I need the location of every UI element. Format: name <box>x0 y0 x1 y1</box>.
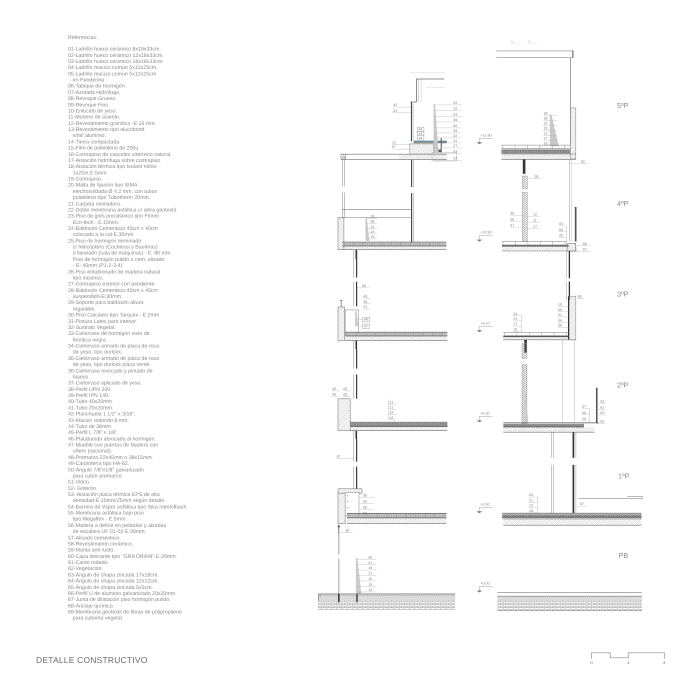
svg-text:52- Goterón.: 52- Goterón. <box>68 486 97 492</box>
svg-text:27: 27 <box>453 144 457 148</box>
svg-text:18: 18 <box>529 509 533 513</box>
svg-text:29: 29 <box>559 234 563 238</box>
svg-text:05-Ladrillo macizo común 5x12x: 05-Ladrillo macizo común 5x12x25cm <box>68 71 157 77</box>
svg-text:21: 21 <box>529 498 533 502</box>
svg-text:67: 67 <box>337 455 341 459</box>
svg-text:51: 51 <box>558 313 562 317</box>
svg-text:43-Macizo redondo 8 mm.: 43-Macizo redondo 8 mm. <box>68 418 129 424</box>
svg-text:- E: 40mm (P1-2-3-4): - E: 40mm (P1-2-3-4) <box>73 263 123 269</box>
svg-text:65: 65 <box>535 175 539 179</box>
svg-text:electrosoldada Ø 4,2 mm, con t: electrosoldada Ø 4,2 mm, con tubos <box>73 189 158 195</box>
svg-text:1: 1 <box>627 660 630 665</box>
svg-text:29-Soporte para baldosón altur: 29-Soporte para baldosón altura <box>68 300 143 306</box>
svg-text:58: 58 <box>362 284 366 288</box>
svg-text:22: 22 <box>544 121 548 125</box>
svg-text:32: 32 <box>453 107 457 111</box>
svg-text:62: 62 <box>600 406 604 410</box>
svg-text:18: 18 <box>513 327 517 331</box>
svg-text:55: 55 <box>371 220 375 224</box>
svg-text:18-Aislación térmica tipo Isol: 18-Aislación térmica tipo Isolant rollos… <box>68 164 158 170</box>
svg-text:58: 58 <box>510 217 514 221</box>
svg-text:59-Manta anti ruido.: 59-Manta anti ruido. <box>68 548 115 554</box>
svg-text:63: 63 <box>600 399 604 403</box>
svg-text:21: 21 <box>544 131 548 135</box>
svg-text:30: 30 <box>510 211 514 215</box>
svg-text:19: 19 <box>389 411 393 415</box>
svg-text:28: 28 <box>544 111 548 115</box>
svg-text:09-Revoque Fino.: 09-Revoque Fino. <box>68 102 110 108</box>
svg-text:13: 13 <box>529 504 533 508</box>
svg-text:21: 21 <box>513 317 517 321</box>
svg-text:13-Revestimiento tipo alucobon: 13-Revestimiento tipo alucobond <box>68 127 145 133</box>
svg-text:22: 22 <box>453 134 457 138</box>
svg-text:67: 67 <box>583 247 587 251</box>
svg-text:44-Tubo de 38mm.: 44-Tubo de 38mm. <box>68 424 112 430</box>
svg-text:62: 62 <box>346 529 350 533</box>
svg-text:39-Perfil IPN 140.: 39-Perfil IPN 140. <box>68 393 109 399</box>
svg-text:62-Vegetación.: 62-Vegetación. <box>68 566 103 572</box>
svg-text:69-Membrana geotextil de fibra: 69-Membrana geotextil de fibras de polip… <box>68 610 182 616</box>
svg-text:67: 67 <box>580 502 584 506</box>
svg-text:densidad-E:10mm/25mm según det: densidad-E:10mm/25mm según detalle. <box>73 498 166 504</box>
svg-text:63: 63 <box>559 222 563 226</box>
svg-text:57: 57 <box>582 405 586 409</box>
svg-text:20-Malla de fijación tipo SIMA: 20-Malla de fijación tipo SIMA <box>68 183 138 189</box>
svg-text:14-Tierra compactada.: 14-Tierra compactada. <box>68 139 121 145</box>
svg-text:44: 44 <box>419 136 423 140</box>
svg-text:26: 26 <box>368 555 372 559</box>
svg-text:21: 21 <box>389 406 393 410</box>
svg-text:53: 53 <box>544 141 548 145</box>
svg-text:57-Alisado cementicio.: 57-Alisado cementicio. <box>68 535 121 541</box>
svg-text:05: 05 <box>363 500 367 504</box>
svg-text:35-Cielorraso armado de placa: 35-Cielorraso armado de placa de roca <box>68 356 159 362</box>
svg-text:12: 12 <box>392 140 396 144</box>
svg-text:08: 08 <box>363 506 367 510</box>
svg-text:62: 62 <box>528 40 532 44</box>
svg-text:65-Ángulo de chapa zincada 5x5: 65-Ángulo de chapa zincada 5x5cm. <box>68 584 153 591</box>
svg-text:32-Sustrato Vegetal.: 32-Sustrato Vegetal. <box>68 325 116 331</box>
svg-text:19-Contrapiso.: 19-Contrapiso. <box>68 177 102 183</box>
svg-text:48: 48 <box>364 318 368 322</box>
svg-text:06: 06 <box>578 294 582 298</box>
svg-text:60-Capa drenante tipo "GRA DRA: 60-Capa drenante tipo "GRA DRAIN"-E.20mm… <box>68 554 177 560</box>
svg-text:49: 49 <box>363 295 367 299</box>
svg-text:31-Pintura Latex para interior: 31-Pintura Latex para interior. <box>68 319 137 325</box>
svg-text:38-Perfil UPN 200.: 38-Perfil UPN 200. <box>68 387 112 393</box>
svg-text:18: 18 <box>371 235 375 239</box>
svg-text:58-Revestimiento cerámico.: 58-Revestimiento cerámico. <box>68 541 133 547</box>
svg-text:60: 60 <box>600 420 604 424</box>
svg-text:+2.50: +2.50 <box>480 502 489 506</box>
svg-text:54-Barrera de Vapor asfáltica: 54-Barrera de Vapor asfáltica tipo Sika … <box>68 504 188 510</box>
svg-text:54: 54 <box>453 157 457 161</box>
svg-text:63-Ángulo de chapa zincada 17x: 63-Ángulo de chapa zincada 17x18cm. <box>68 571 159 578</box>
svg-text:blanco.: blanco. <box>73 374 90 380</box>
svg-text:30: 30 <box>371 215 375 219</box>
svg-text:14: 14 <box>368 588 372 592</box>
svg-text:16: 16 <box>368 577 372 581</box>
svg-text:para cubrir premarco.: para cubrir premarco. <box>73 473 123 479</box>
svg-text:24: 24 <box>513 312 517 316</box>
svg-text:53: 53 <box>453 150 457 154</box>
svg-text:36: 36 <box>363 300 367 304</box>
svg-text:34-Cielorraso armado de placa: 34-Cielorraso armado de placa de roca <box>68 344 159 350</box>
svg-text:21: 21 <box>453 139 457 143</box>
svg-text:03-Ladrillo hueco cerámico 18x: 03-Ladrillo hueco cerámico 18x18x33cm. <box>68 59 164 65</box>
svg-text:27: 27 <box>533 224 537 228</box>
svg-text:08-Revoque Grueso.: 08-Revoque Grueso. <box>68 96 117 102</box>
svg-text:21-Carpeta niveladora.: 21-Carpeta niveladora. <box>68 201 121 207</box>
svg-text:21: 21 <box>371 225 375 229</box>
svg-text:uñero (opcional).: uñero (opcional). <box>73 449 112 455</box>
svg-text:20: 20 <box>529 493 533 497</box>
svg-text:10: 10 <box>558 303 562 307</box>
svg-text:36-Cielorraso revocado y pinta: 36-Cielorraso revocado y pintado de <box>68 368 153 374</box>
svg-text:41-Tubo 20x20mm.: 41-Tubo 20x20mm. <box>68 405 113 411</box>
svg-text:o llaneado (sala de máquinas): o llaneado (sala de máquinas) - E: 80 mm <box>73 251 171 257</box>
svg-text:68: 68 <box>583 242 587 246</box>
svg-text:de escalera UF 01-02-E:30mm.: de escalera UF 01-02-E:30mm. <box>73 529 146 535</box>
svg-text:59: 59 <box>453 129 457 133</box>
svg-text:22-Doble membrana asfáltica c/: 22-Doble membrana asfáltica c/ alma geot… <box>68 207 177 213</box>
svg-text:68-Anclaje químico.: 68-Anclaje químico. <box>68 603 114 609</box>
svg-text:2: 2 <box>663 660 666 665</box>
svg-text:Piso de hormigón pulido o cem.: Piso de hormigón pulido o cem. alisado <box>73 257 165 263</box>
svg-text:DETALLE CONSTRUCTIVO: DETALLE CONSTRUCTIVO <box>36 655 148 665</box>
svg-text:polietileno tipo Tubotherm 20m: polietileno tipo Tubotherm 20mm. <box>73 195 151 201</box>
svg-text:02-Ladrillo hueco cerámico 12x: 02-Ladrillo hueco cerámico 12x18x33cm. <box>68 53 164 59</box>
svg-text:42: 42 <box>393 103 397 107</box>
svg-text:63: 63 <box>600 411 604 415</box>
svg-text:51-Vidrio.: 51-Vidrio. <box>68 480 90 486</box>
svg-text:27-Contrapiso exterior con pen: 27-Contrapiso exterior con pendiente. <box>68 282 156 288</box>
svg-text:0: 0 <box>590 660 593 665</box>
svg-text:36: 36 <box>363 494 367 498</box>
svg-text:regulable.: regulable. <box>73 306 96 312</box>
svg-text:+6.30: +6.30 <box>480 412 489 416</box>
svg-text:en Pandereta.: en Pandereta. <box>73 78 106 84</box>
svg-text:32: 32 <box>511 40 515 44</box>
svg-text:46: 46 <box>332 392 336 396</box>
svg-text:52: 52 <box>581 159 585 163</box>
svg-text:11-Mortero de asiento.: 11-Mortero de asiento. <box>68 115 120 121</box>
svg-text:33-Cielorraso de hormigón vist: 33-Cielorraso de hormigón visto de <box>68 331 150 337</box>
svg-text:62: 62 <box>453 101 457 105</box>
svg-text:12-Revestimiento granítico -E:: 12-Revestimiento granítico -E:15 mm. <box>68 121 156 127</box>
svg-text:08: 08 <box>343 392 347 396</box>
svg-text:12: 12 <box>533 212 537 216</box>
svg-text:30-Piso Calcáreo tipo Tarquini: 30-Piso Calcáreo tipo Tarquini - E:2mm <box>68 313 160 319</box>
svg-text:+10.90: +10.90 <box>480 231 491 235</box>
svg-text:+9.10: +9.10 <box>480 321 489 325</box>
svg-text:29: 29 <box>582 417 586 421</box>
svg-text:29: 29 <box>544 116 548 120</box>
svg-text:06-Tabique de hormigón.: 06-Tabique de hormigón. <box>68 84 126 90</box>
svg-text:23: 23 <box>544 126 548 130</box>
svg-text:23-Piso de gres porcelánico ti: 23-Piso de gres porcelánico tipo Florim <box>68 214 160 220</box>
svg-text:42-Planchuela 1 1/2" x 3/16".: 42-Planchuela 1 1/2" x 3/16". <box>68 412 136 418</box>
svg-text:16-Contrapiso de cascotes s/te: 16-Contrapiso de cascotes s/terreno natu… <box>68 152 172 158</box>
svg-text:49-Carpintería tipo HA-62.: 49-Carpintería tipo HA-62. <box>68 461 129 467</box>
svg-text:17: 17 <box>368 572 372 576</box>
svg-text:17-Aislación hidrófuga sobre c: 17-Aislación hidrófuga sobre contrapiso. <box>68 158 162 164</box>
svg-text:23: 23 <box>389 400 393 404</box>
svg-text:36: 36 <box>558 318 562 322</box>
svg-text:4ºP: 4ºP <box>617 199 629 208</box>
svg-text:11: 11 <box>533 218 537 222</box>
svg-text:23: 23 <box>371 230 375 234</box>
svg-text:50-Ángulo 7/8"x1/8" galvanizad: 50-Ángulo 7/8"x1/8" galvanizado <box>68 466 144 473</box>
svg-text:25-Piso de hormigón terminado: 25-Piso de hormigón terminado <box>68 238 141 244</box>
svg-text:02: 02 <box>343 387 347 391</box>
svg-text:61-Canto rodado.: 61-Canto rodado. <box>68 560 109 566</box>
svg-text:21: 21 <box>368 561 372 565</box>
svg-text:46-Platabanda abrocada al horm: 46-Platabanda abrocada al hormigón. <box>68 436 156 442</box>
svg-text:06: 06 <box>558 324 562 328</box>
svg-text:01-Ladrillo hueco cerámico 8x1: 01-Ladrillo hueco cerámico 8x18x33cm. <box>68 47 161 53</box>
svg-text:55-Membrana asfáltica bajo pis: 55-Membrana asfáltica bajo piso <box>68 511 144 517</box>
svg-text:para cubierta vegetal.: para cubierta vegetal. <box>73 616 124 622</box>
svg-text:37-Cielorraso aplicado de yeso: 37-Cielorraso aplicado de yeso. <box>68 381 142 387</box>
svg-text:15: 15 <box>368 583 372 587</box>
svg-text:67-Junta de dilatación piso ho: 67-Junta de dilatación piso hormigón pul… <box>68 597 171 603</box>
svg-text:15-Film de polietileno de 200u: 15-Film de polietileno de 200u. <box>68 146 140 152</box>
svg-text:+0.00: +0.00 <box>480 582 489 586</box>
svg-text:47-Mueble con puertas de Mader: 47-Mueble con puertas de Madera con <box>68 443 158 449</box>
svg-text:1x25m.E:5mm.: 1x25m.E:5mm. <box>73 170 108 176</box>
svg-text:53: 53 <box>393 109 397 113</box>
svg-text:símil aluminio.: símil aluminio. <box>73 133 106 139</box>
svg-text:18: 18 <box>389 416 393 420</box>
svg-text:28-Baldosón Cementicio 40cm x: 28-Baldosón Cementicio 40cm x 40cm <box>68 288 159 294</box>
svg-text:10-Enlucido de yeso.: 10-Enlucido de yeso. <box>68 108 117 114</box>
svg-text:5ºP: 5ºP <box>617 101 629 110</box>
svg-text:48-Premarco 22x45mm o 38x15mm.: 48-Premarco 22x45mm o 38x15mm. <box>68 455 153 461</box>
svg-text:17: 17 <box>513 322 517 326</box>
svg-text:19: 19 <box>368 566 372 570</box>
svg-text:suspendido-E:30mm.: suspendido-E:30mm. <box>73 294 123 300</box>
svg-text:56-Madera a definir en pedadas: 56-Madera a definir en pedadas y alzadas <box>68 523 166 529</box>
svg-text:tipo incienso.: tipo incienso. <box>73 275 104 281</box>
svg-text:57: 57 <box>363 305 367 309</box>
svg-text:27: 27 <box>544 136 548 140</box>
svg-text:08: 08 <box>558 308 562 312</box>
svg-text:45-Perfil L 7/8" x 1/8".: 45-Perfil L 7/8" x 1/8". <box>68 430 119 436</box>
svg-text:66-Perfil U de aluminio galvan: 66-Perfil U de aluminio galvanizado 20x2… <box>68 591 177 597</box>
svg-text:de yeso, tipo durlock.: de yeso, tipo durlock. <box>73 350 123 356</box>
svg-text:45: 45 <box>332 387 336 391</box>
svg-text:40-Tubo 40x20mm.: 40-Tubo 40x20mm. <box>68 399 113 405</box>
svg-text:53- Aislación placa térmica EP: 53- Aislación placa térmica EPS de alta <box>68 492 160 498</box>
svg-text:07-Azotada Hidrófugo.: 07-Azotada Hidrófugo. <box>68 90 121 96</box>
svg-text:3ºP: 3ºP <box>617 290 629 299</box>
svg-text:64-Ángulo de chapa zincada 12x: 64-Ángulo de chapa zincada 12x12cm. <box>68 578 159 585</box>
svg-text:colocado a la cal-E:30mm.: colocado a la cal-E:30mm. <box>73 232 135 238</box>
svg-text:1ºP: 1ºP <box>618 472 630 481</box>
svg-text:37: 37 <box>510 223 514 227</box>
svg-text:26-Piso entablonado de madera: 26-Piso entablonado de madera natural <box>68 269 160 275</box>
svg-text:PB: PB <box>619 551 629 560</box>
svg-text:60: 60 <box>453 124 457 128</box>
svg-text:66: 66 <box>559 228 563 232</box>
svg-text:63: 63 <box>453 113 457 117</box>
svg-text:04-Ladrillo macizo común 5x12x: 04-Ladrillo macizo común 5x12x25cm. <box>68 65 158 71</box>
svg-text:tipo Megaflex - E.5mm.: tipo Megaflex - E.5mm. <box>73 517 127 523</box>
svg-text:57: 57 <box>392 145 396 149</box>
svg-text:2ºP: 2ºP <box>617 380 629 389</box>
svg-text:Eco-tech - E:10mm.: Eco-tech - E:10mm. <box>73 220 119 226</box>
svg-text:69: 69 <box>453 118 457 122</box>
svg-text:66: 66 <box>582 411 586 415</box>
svg-text:c/ helicóptero (Cocheras y Bau: c/ helicóptero (Cocheras y Bauleras) <box>73 245 158 251</box>
svg-text:de yeso, tipo durlock placa ve: de yeso, tipo durlock placa verde. <box>73 362 151 368</box>
svg-text:47: 47 <box>364 325 368 329</box>
svg-text:+13.90: +13.90 <box>480 133 491 137</box>
svg-text:Referencias:: Referencias: <box>68 35 97 41</box>
svg-text:24-Baldosón Cementicio 40cm x: 24-Baldosón Cementicio 40cm x 40cm <box>68 226 159 232</box>
svg-text:fenólica negra.: fenólica negra. <box>73 337 107 343</box>
